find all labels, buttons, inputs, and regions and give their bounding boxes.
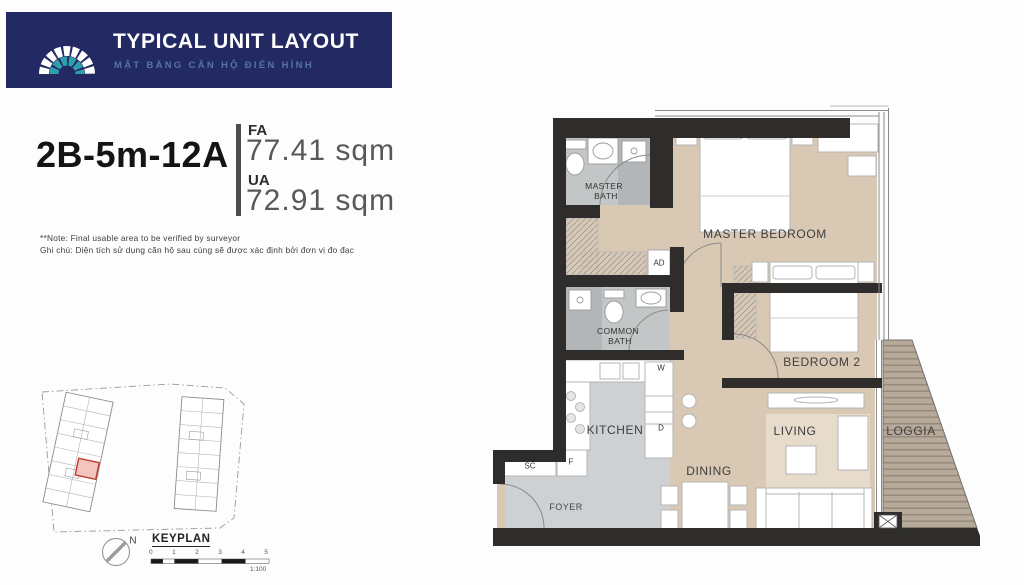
scale-tick: 1 [172,549,176,556]
scale-tick: 4 [241,549,245,556]
scale-ticks: 0 1 2 3 4 5 [149,549,268,556]
label-bedroom2: BEDROOM 2 [783,355,860,369]
label-common-bath-2: BATH [608,336,632,346]
label-loggia: LOGGIA [886,424,936,438]
label-kitchen: KITCHEN [587,423,644,437]
label-master-bath-2: BATH [594,191,618,201]
arch-logo-icon [32,26,102,76]
keyplan-building-right [174,397,224,512]
floor-plan: MASTER BATH COMMON BATH MASTER BEDROOM B… [490,100,980,565]
fa-value: 77.41 sqm [246,134,395,168]
ac-unit [874,512,902,531]
bedroom2-furniture [752,262,874,352]
label-dining: DINING [686,464,732,478]
label-shoe-cabinet: SC [524,462,535,471]
scale-tick: 0 [149,549,153,556]
label-fridge: F [569,458,574,467]
label-common-bath-1: COMMON [597,326,639,336]
note-line-1: **Note: Final usable area to be verified… [40,233,240,243]
keyplan-unit-highlight [75,458,99,479]
keyplan: N KEYPLAN 0 1 2 3 4 5 1:100 [20,370,290,582]
label-washer: W [657,364,665,373]
compass-icon [103,539,130,566]
keyplan-building-left [43,392,113,512]
label-foyer: FOYER [549,502,583,512]
scale-ratio: 1:100 [250,566,266,573]
unit-code: 2B-5m-12A [36,134,229,176]
scale-tick: 3 [218,549,222,556]
page-title: TYPICAL UNIT LAYOUT [113,30,359,54]
label-ad: AD [653,259,664,268]
label-master-bedroom: MASTER BEDROOM [703,227,827,241]
label-dryer: D [658,424,664,433]
vertical-divider [236,124,241,216]
north-label: N [129,536,136,547]
page: TYPICAL UNIT LAYOUT MẶT BẰNG CĂN HỘ ĐIỂN… [0,0,1024,585]
keyplan-title: KEYPLAN [152,533,210,547]
scale-tick: 2 [195,549,199,556]
scale-tick: 5 [264,549,268,556]
floor-plan-drawing [490,100,980,565]
page-subtitle: MẶT BẰNG CĂN HỘ ĐIỂN HÌNH [114,60,314,71]
scale-bar [151,559,269,564]
note-line-2: Ghi chú: Diện tích sử dụng căn hộ sau cù… [40,245,354,255]
label-master-bath-1: MASTER [585,181,623,191]
ua-value: 72.91 sqm [246,184,395,218]
label-living: LIVING [774,424,817,438]
